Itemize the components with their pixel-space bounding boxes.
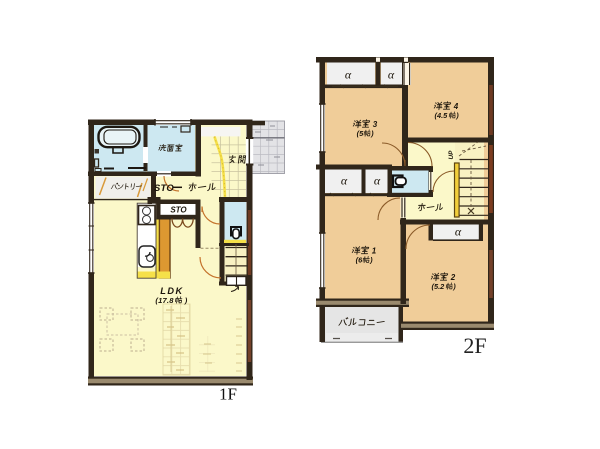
svg-text:(5: (5 (357, 129, 364, 138)
svg-text:(4.5: (4.5 (435, 111, 449, 120)
svg-text:α: α (345, 68, 352, 82)
svg-text:): ) (452, 282, 456, 291)
svg-text:STO: STO (170, 206, 187, 215)
svg-text:): ) (184, 296, 188, 305)
svg-text:(17.8: (17.8 (155, 296, 174, 305)
svg-text:3: 3 (373, 120, 378, 129)
svg-text:2F: 2F (463, 333, 486, 358)
svg-text:LDK: LDK (160, 286, 183, 296)
svg-text:α: α (388, 68, 395, 82)
svg-text:): ) (369, 255, 373, 264)
svg-text:): ) (455, 111, 459, 120)
svg-text:α: α (341, 174, 348, 188)
svg-text:UP: UP (448, 150, 455, 160)
svg-text:1: 1 (372, 247, 377, 256)
svg-text:2: 2 (450, 273, 456, 282)
svg-text:1F: 1F (219, 385, 237, 404)
svg-text:): ) (370, 129, 374, 138)
svg-text:(5.2: (5.2 (432, 282, 446, 291)
svg-text:α: α (455, 225, 462, 239)
svg-text:α: α (374, 174, 381, 188)
svg-text:STO: STO (154, 183, 175, 194)
svg-text:4: 4 (453, 102, 459, 111)
svg-text:(6: (6 (356, 255, 363, 264)
